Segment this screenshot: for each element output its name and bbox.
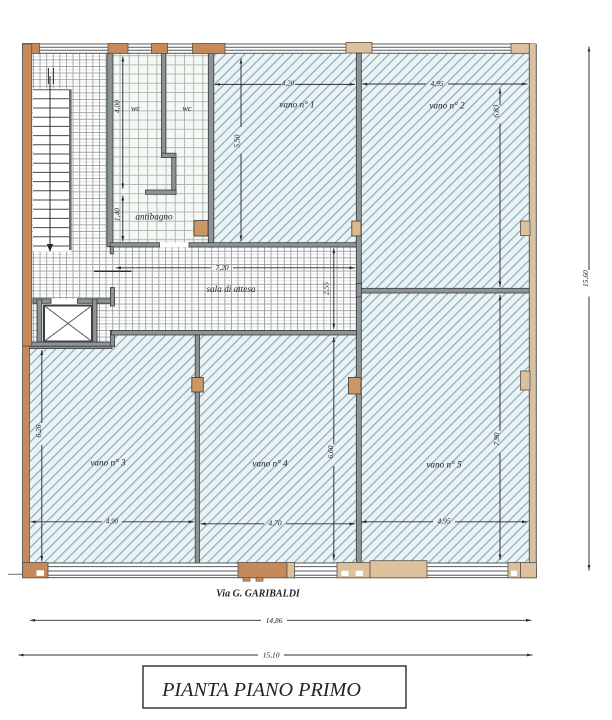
svg-text:vano n° 1: vano n° 1 <box>279 99 314 109</box>
svg-text:Via G. GARIBALDI: Via G. GARIBALDI <box>216 589 301 600</box>
svg-text:6,83: 6,83 <box>492 104 501 117</box>
svg-text:sala di attesa: sala di attesa <box>206 284 255 294</box>
svg-text:14,86: 14,86 <box>266 616 283 625</box>
svg-text:4,95: 4,95 <box>437 517 450 526</box>
svg-text:PIANTA PIANO PRIMO: PIANTA PIANO PRIMO <box>161 679 361 701</box>
svg-text:vano n° 4: vano n° 4 <box>252 459 288 469</box>
svg-text:7,90: 7,90 <box>492 432 501 445</box>
svg-text:4,00: 4,00 <box>113 100 122 113</box>
svg-text:vano n° 2: vano n° 2 <box>429 100 465 110</box>
svg-text:4,90: 4,90 <box>106 518 119 526</box>
svg-text:vano n° 3: vano n° 3 <box>90 458 126 468</box>
svg-text:4,20: 4,20 <box>282 80 295 88</box>
svg-text:wc: wc <box>182 104 191 113</box>
svg-text:15,10: 15,10 <box>263 650 280 659</box>
svg-text:5,50: 5,50 <box>233 134 242 147</box>
svg-text:2,55: 2,55 <box>322 282 331 295</box>
svg-text:4,95: 4,95 <box>430 79 443 88</box>
svg-text:1,40: 1,40 <box>113 208 122 221</box>
svg-text:antibagno: antibagno <box>135 212 173 222</box>
svg-text:6,60: 6,60 <box>326 445 335 458</box>
svg-text:7,20: 7,20 <box>215 263 228 272</box>
svg-text:vano n° 5: vano n° 5 <box>426 460 462 470</box>
svg-text:6,26: 6,26 <box>34 424 43 437</box>
svg-text:15,60: 15,60 <box>581 270 590 287</box>
svg-text:wc: wc <box>131 104 140 113</box>
svg-text:4,70: 4,70 <box>268 519 281 528</box>
